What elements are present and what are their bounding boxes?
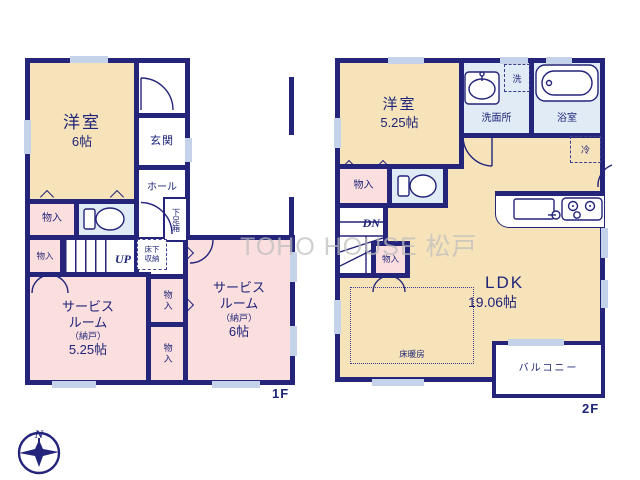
entrance-label: 玄関 [150, 135, 174, 149]
window-opening [388, 57, 424, 64]
kitchen-sink-icon [512, 197, 562, 225]
service1-l1: サービス [62, 299, 114, 315]
compass-icon: N [12, 424, 66, 478]
hall-label: ホール [147, 182, 177, 195]
stairs-up-label: UP [115, 252, 131, 267]
room-western-2f-name: 洋室 [382, 96, 416, 115]
service2-l3: （納戸） [221, 313, 257, 324]
underfloor-l2: 収納 [145, 255, 160, 263]
wall-segment [289, 77, 294, 135]
ldk-size: 19.06帖 [468, 294, 517, 312]
window-opening [601, 280, 608, 308]
laundry-space: 洗 [504, 64, 530, 92]
room-western-1f-name: 洋室 [63, 112, 101, 133]
toilet-icon [82, 203, 128, 235]
double-door-arc [31, 274, 69, 294]
service1-l2: ルーム [69, 315, 108, 331]
watermark: TOHO HOUSE 松戸 [240, 227, 478, 263]
closet-label: 物入 [161, 290, 172, 312]
closet-1f-c: 物入 [146, 274, 188, 327]
balcony-label: バルコニー [519, 363, 579, 376]
closet-1f-a: 物入 [25, 199, 79, 240]
window-opening [70, 56, 108, 63]
window-opening [334, 300, 341, 334]
closet-label: 物入 [42, 213, 62, 226]
door-arc [462, 135, 494, 167]
closet-label: 物入 [36, 251, 53, 262]
floor-label-2f: 2F [582, 401, 599, 416]
vanity-sink-icon [463, 64, 501, 106]
double-door-arc [372, 275, 408, 293]
refrigerator-label: 冷 [581, 143, 590, 156]
window-opening [508, 339, 564, 346]
floor-heating-area: 床暖房 [350, 287, 474, 364]
bathroom-label: 浴室 [557, 113, 577, 126]
window-opening [52, 381, 96, 388]
room-entrance-1f: 玄関 [134, 113, 190, 170]
window-opening [601, 228, 608, 258]
floor-label-1f: 1F [272, 386, 289, 401]
refrigerator-space: 冷 [570, 136, 601, 163]
service1-l3: （納戸） [70, 331, 106, 342]
floor-heating-label: 床暖房 [399, 348, 425, 363]
closet-1f-b: 物入 [25, 235, 65, 277]
door-arc [139, 76, 179, 112]
stair-treads [65, 240, 115, 272]
room-western-2f-size: 5.25帖 [380, 115, 418, 131]
window-opening [372, 379, 424, 386]
door-arc [140, 200, 174, 236]
washroom-label: 洗面所 [482, 113, 512, 126]
closet-1f-d: 物入 [146, 322, 188, 385]
room-western-2f: 洋室 5.25帖 [335, 58, 464, 169]
closet-label: 物入 [161, 343, 172, 365]
laundry-label: 洗 [512, 72, 521, 85]
window-opening [500, 57, 528, 64]
service2-l1: サービス [213, 280, 265, 296]
window-opening [24, 120, 31, 154]
window-opening [212, 381, 260, 388]
window-opening [290, 326, 297, 356]
closet-label: 物入 [354, 180, 374, 193]
floor-plan-canvas: 洋室 6帖 玄関 ホール 下足箱 物入 物入 UP 床下 収納 サ [0, 0, 640, 480]
room-western-1f-size: 6帖 [72, 134, 92, 150]
ldk-name: LDK [485, 272, 524, 293]
stove-icon [560, 194, 604, 224]
bathtub-icon [534, 63, 600, 103]
underfloor-storage-1f: 床下 収納 [137, 239, 167, 270]
toilet-icon [396, 170, 440, 202]
service2-l2: ルーム [220, 296, 259, 312]
door-arc [596, 163, 614, 189]
balcony-2f: バルコニー [492, 341, 605, 398]
window-opening [185, 138, 192, 162]
service1-l4: 5.25帖 [69, 342, 107, 358]
window-opening [334, 118, 341, 148]
compass-needle [19, 440, 59, 467]
room-western-1f: 洋室 6帖 [25, 58, 139, 204]
service2-l4: 6帖 [229, 324, 249, 340]
stairs-1f: UP [60, 235, 139, 277]
